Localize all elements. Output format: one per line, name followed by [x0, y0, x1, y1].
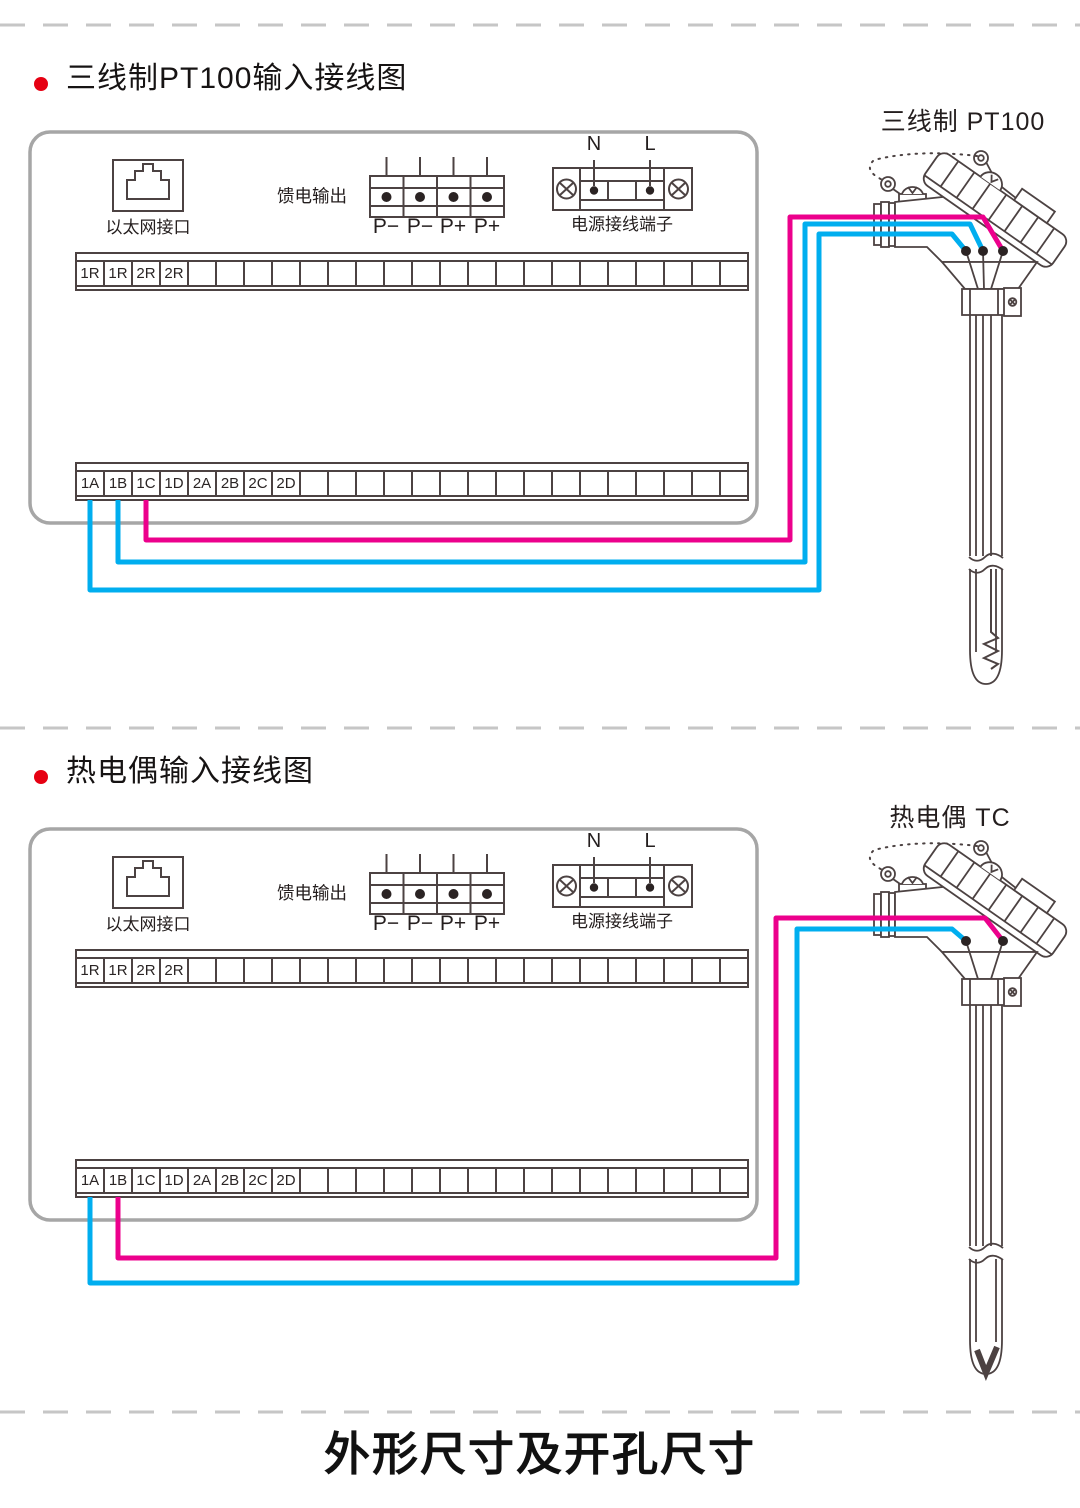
input-cell-label: 1B — [104, 1172, 132, 1189]
relay-cell-label: 2R — [132, 962, 160, 979]
sensor-label-tc: 热电偶 TC — [870, 804, 1030, 833]
sensor-label-pt100: 三线制 PT100 — [873, 108, 1053, 137]
section-bullet-2 — [34, 770, 48, 784]
device-panel-pt100 — [30, 132, 757, 523]
section-title-pt100: 三线制PT100输入接线图 — [66, 62, 407, 97]
sensor-terminal-dot — [998, 936, 1008, 946]
input-cell-label: 2B — [216, 1172, 244, 1189]
feed-output-label: 馈电输出 — [264, 883, 360, 903]
device-panel-tc — [30, 829, 757, 1220]
input-cell-label: 1C — [132, 1172, 160, 1189]
input-cell-label: 1A — [76, 1172, 104, 1189]
power-block-label: 电源接线端子 — [548, 215, 696, 235]
relay-cell-label: 1R — [104, 265, 132, 282]
feed-output-label: 馈电输出 — [264, 186, 360, 206]
relay-cell-label: 1R — [76, 265, 104, 282]
sensor-terminal-dot — [961, 936, 971, 946]
relay-cell-label: 2R — [160, 265, 188, 282]
relay-cell-label: 1R — [104, 962, 132, 979]
input-cell-label: 1C — [132, 475, 160, 492]
input-cell-label: 2D — [272, 1172, 300, 1189]
ethernet-label: 以太网接口 — [84, 218, 212, 238]
relay-cell-label: 1R — [76, 962, 104, 979]
section-title-tc: 热电偶输入接线图 — [66, 755, 314, 790]
input-cell-label: 2A — [188, 475, 216, 492]
power-terminal-l: L — [635, 133, 665, 156]
power-terminal-n: N — [579, 830, 609, 853]
relay-cell-label: 2R — [132, 265, 160, 282]
input-cell-label: 1A — [76, 475, 104, 492]
sensor-terminal-dot — [978, 246, 988, 256]
input-cell-label: 2C — [244, 1172, 272, 1189]
power-terminal-n: N — [579, 133, 609, 156]
sensor-pt100 — [870, 138, 1078, 684]
section-bullet-1 — [34, 77, 48, 91]
input-cell-label: 1D — [160, 1172, 188, 1189]
input-cell-label: 1D — [160, 475, 188, 492]
footer-heading: 外形尺寸及开孔尺寸 — [0, 1428, 1080, 1481]
relay-cell-label: 2R — [160, 962, 188, 979]
input-cell-label: 2D — [272, 475, 300, 492]
power-terminal-l: L — [635, 830, 665, 853]
ethernet-label: 以太网接口 — [84, 915, 212, 935]
input-cell-label: 1B — [104, 475, 132, 492]
input-cell-label: 2C — [244, 475, 272, 492]
sensor-terminal-dot — [961, 246, 971, 256]
power-block-label: 电源接线端子 — [548, 912, 696, 932]
sensor-terminal-dot — [998, 246, 1008, 256]
input-cell-label: 2A — [188, 1172, 216, 1189]
feed-terminal-label: P+ — [465, 215, 509, 239]
feed-terminal-label: P+ — [465, 912, 509, 936]
sensor-tc — [870, 828, 1078, 1374]
input-cell-label: 2B — [216, 475, 244, 492]
